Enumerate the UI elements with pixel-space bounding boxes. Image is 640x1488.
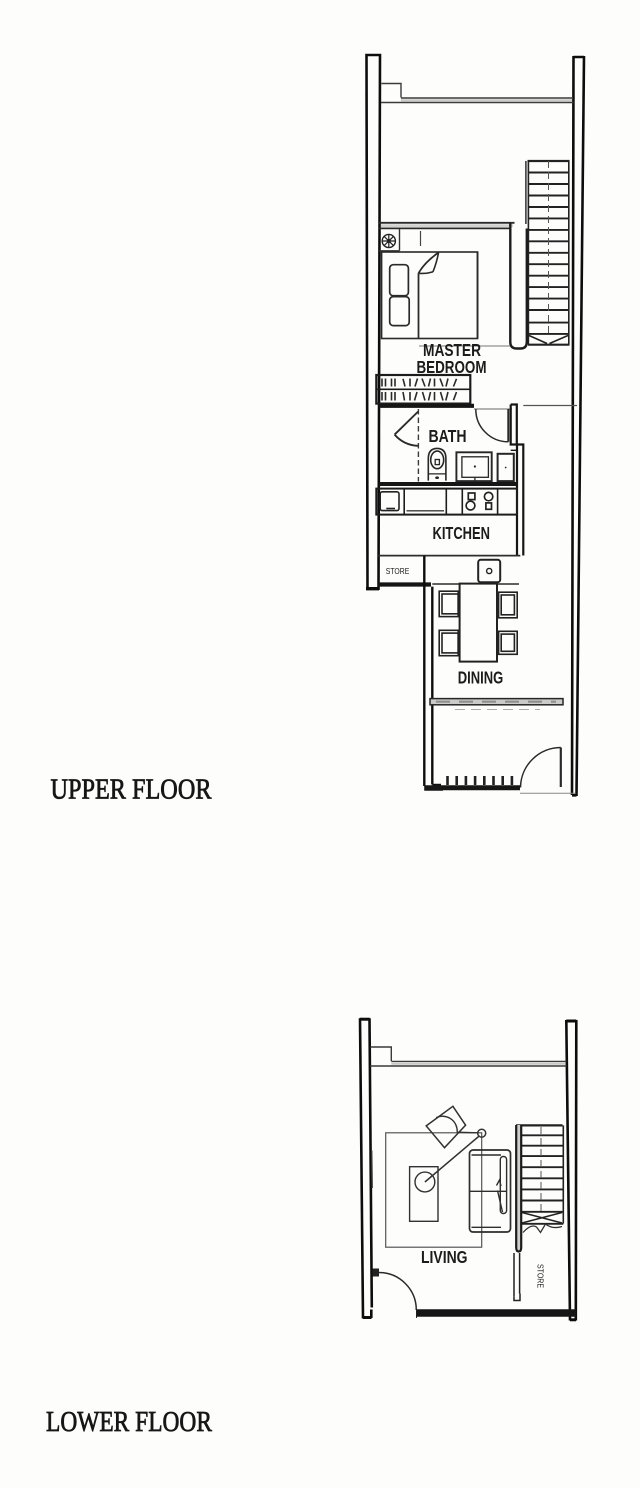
svg-text:STORE: STORE [536, 1264, 545, 1288]
svg-text:STORE: STORE [386, 567, 410, 576]
svg-text:DINING: DINING [458, 668, 504, 688]
svg-text:KITCHEN: KITCHEN [433, 523, 491, 543]
svg-text:LOWER FLOOR: LOWER FLOOR [46, 1406, 213, 1438]
svg-text:LIVING: LIVING [421, 1247, 468, 1267]
svg-text:BATH: BATH [429, 426, 467, 446]
svg-text:UPPER FLOOR: UPPER FLOOR [51, 774, 213, 806]
